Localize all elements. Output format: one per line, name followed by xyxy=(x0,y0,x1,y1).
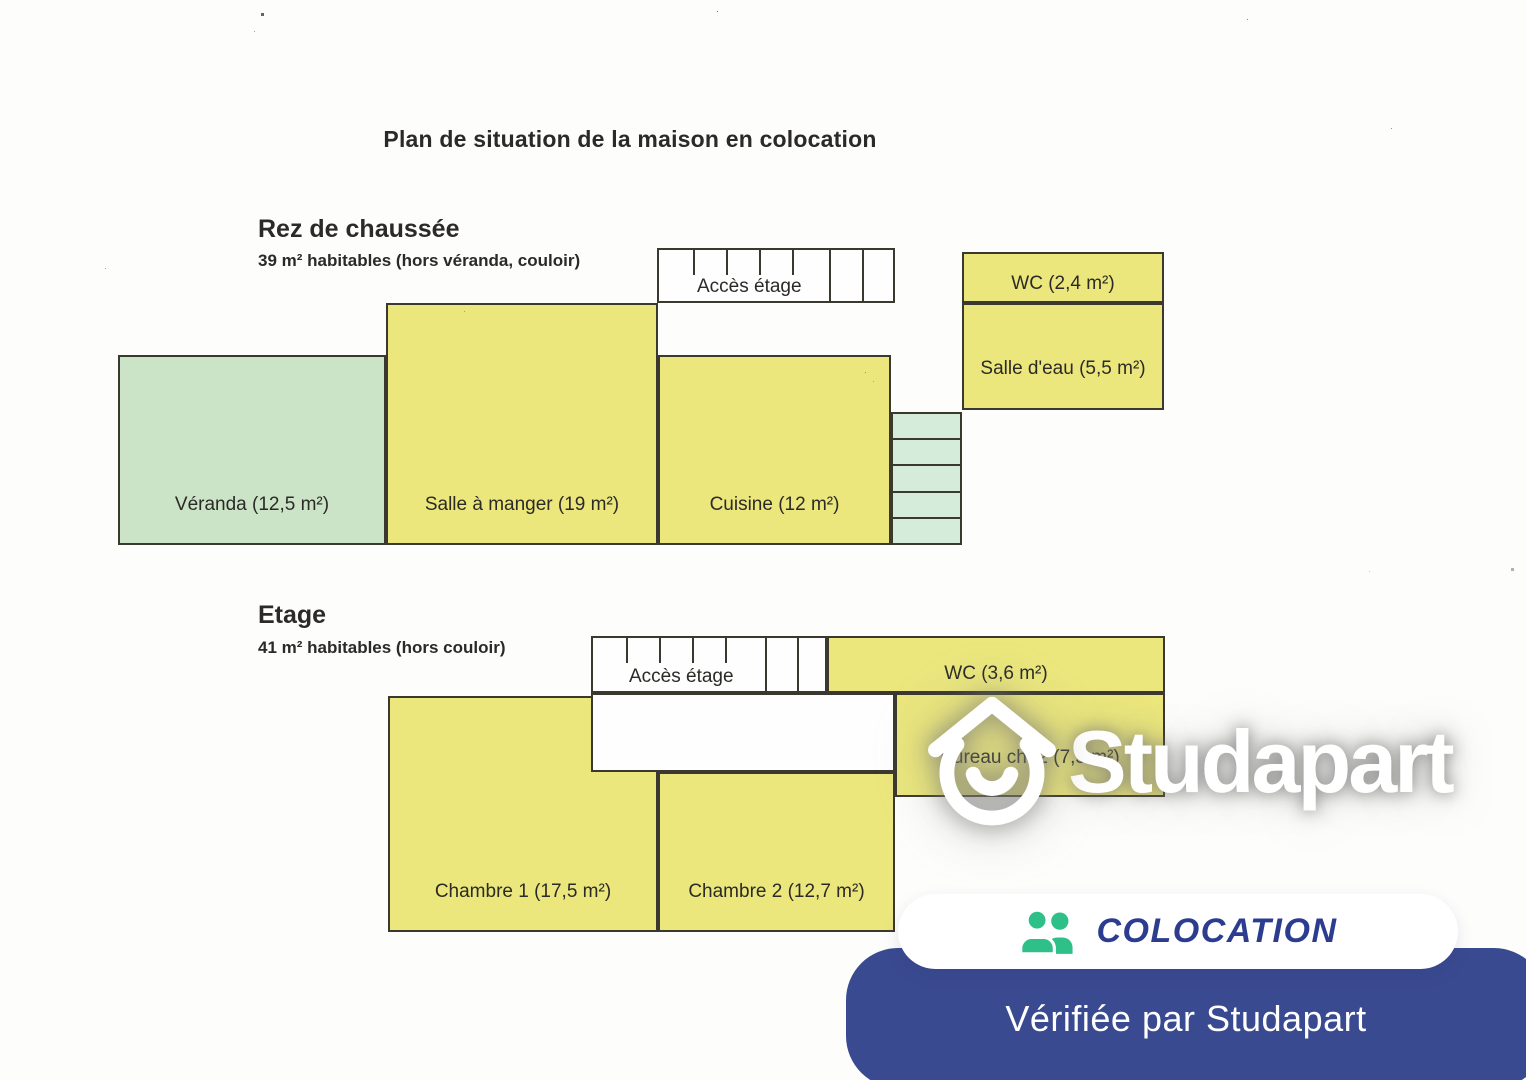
stair-tick xyxy=(693,250,695,275)
room-wc-first: WC (3,6 m²) xyxy=(827,636,1165,693)
people-icon xyxy=(1018,909,1078,955)
stair-step xyxy=(893,414,960,440)
room-wc-ground-label: WC (2,4 m²) xyxy=(1011,273,1114,296)
stair-tick xyxy=(862,250,864,301)
room-wc-first-label: WC (3,6 m²) xyxy=(944,663,1047,686)
stairs-first-floor: Accès étage xyxy=(591,636,827,693)
stair-tick xyxy=(759,250,761,275)
stair-tick xyxy=(829,250,831,301)
stair-step xyxy=(893,519,960,543)
scan-noise xyxy=(0,0,3,3)
stair-tick xyxy=(626,638,628,663)
room-veranda-label: Véranda (12,5 m²) xyxy=(175,494,329,517)
first-floor-subtitle: 41 m² habitables (hors couloir) xyxy=(258,639,506,657)
room-bedroom-2: Chambre 2 (12,7 m²) xyxy=(658,772,895,932)
room-bedroom-2-label: Chambre 2 (12,7 m²) xyxy=(688,881,864,904)
room-shower: Salle d'eau (5,5 m²) xyxy=(962,303,1164,410)
stair-tick xyxy=(792,250,794,275)
stair-step xyxy=(893,493,960,519)
room-wc-ground: WC (2,4 m²) xyxy=(962,252,1164,303)
room-shower-label: Salle d'eau (5,5 m²) xyxy=(980,358,1145,381)
page-title: Plan de situation de la maison en coloca… xyxy=(250,126,1010,153)
stair-tick xyxy=(659,638,661,663)
stair-tick xyxy=(725,638,727,663)
stair-tick xyxy=(765,638,767,691)
room-veranda: Véranda (12,5 m²) xyxy=(118,355,386,545)
stair-tick xyxy=(726,250,728,275)
room-kitchen: Cuisine (12 m²) xyxy=(658,355,891,545)
stair-step xyxy=(893,466,960,492)
ground-floor-subtitle: 39 m² habitables (hors véranda, couloir) xyxy=(258,252,580,270)
stair-tick xyxy=(797,638,799,691)
room-kitchen-label: Cuisine (12 m²) xyxy=(710,494,840,517)
corridor-first-floor xyxy=(591,693,895,772)
stairs-label-ground: Accès étage xyxy=(697,276,802,299)
room-bedroom-1-label: Chambre 1 (17,5 m²) xyxy=(435,881,611,904)
stairs-ground-floor: Accès étage xyxy=(657,248,895,303)
room-dining: Salle à manger (19 m²) xyxy=(386,303,658,545)
colocation-badge: COLOCATION xyxy=(898,894,1458,969)
stair-step xyxy=(893,440,960,466)
room-dining-label: Salle à manger (19 m²) xyxy=(425,494,619,517)
stair-tick xyxy=(692,638,694,663)
colocation-badge-label: COLOCATION xyxy=(1096,912,1337,951)
floor-plan-document: Plan de situation de la maison en coloca… xyxy=(0,0,1526,1080)
ground-floor-heading: Rez de chaussée xyxy=(258,216,460,242)
first-floor-heading: Etage xyxy=(258,602,326,628)
stairs-label-first: Accès étage xyxy=(629,666,734,689)
staircase-steps xyxy=(891,412,962,545)
verified-banner-text: Vérifiée par Studapart xyxy=(846,998,1526,1040)
room-office: Bureau ch. 2 (7,5 m²) xyxy=(895,693,1165,797)
room-office-label: Bureau ch. 2 (7,5 m²) xyxy=(940,747,1120,770)
